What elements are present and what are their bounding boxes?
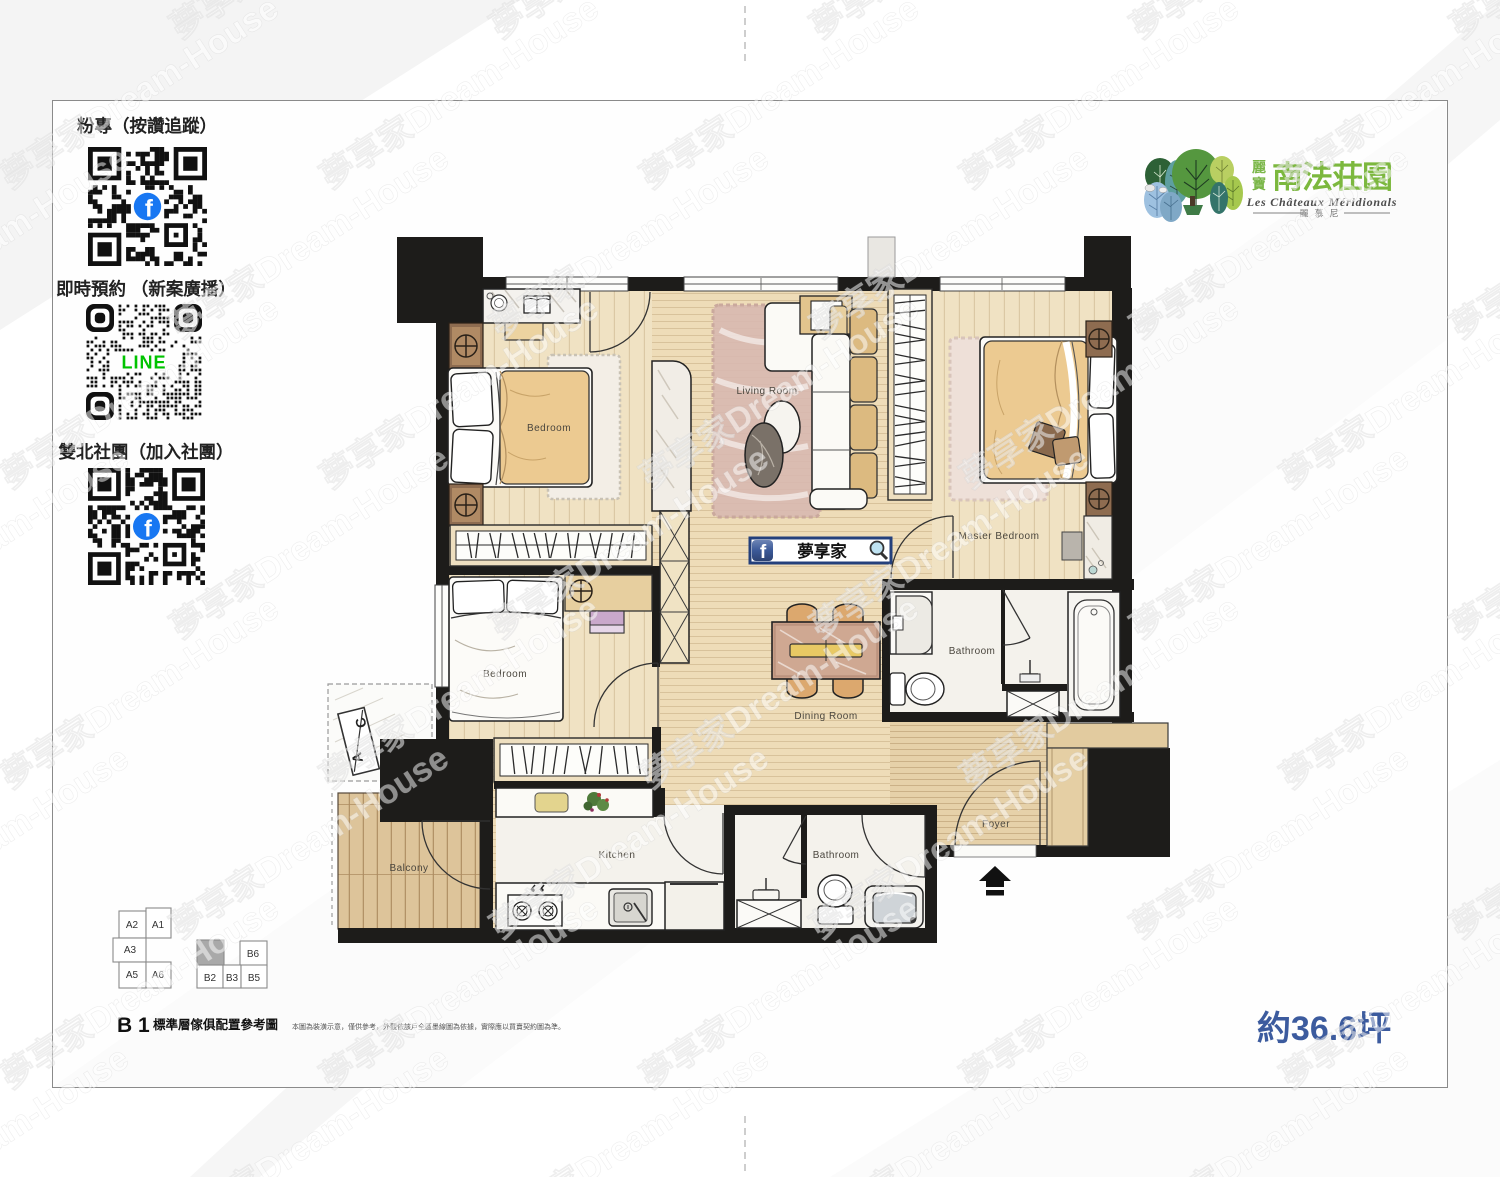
svg-text:f: f (144, 515, 152, 541)
svg-text:麗: 麗 (1252, 159, 1266, 175)
svg-text:Balcony: Balcony (389, 863, 428, 874)
svg-text:寶: 寶 (1252, 176, 1266, 192)
svg-text:B3: B3 (226, 973, 239, 984)
svg-text:A1: A1 (152, 920, 165, 931)
svg-text:B5: B5 (248, 973, 261, 984)
svg-text:標準層傢俱配置參考圖: 標準層傢俱配置參考圖 (153, 1017, 278, 1032)
svg-text:B2: B2 (204, 973, 217, 984)
svg-text:Dining Room: Dining Room (794, 711, 857, 722)
svg-text:f: f (145, 196, 154, 223)
svg-text:Bedroom: Bedroom (527, 423, 571, 434)
svg-text:Bathroom: Bathroom (949, 646, 996, 657)
svg-text:夢享家: 夢享家 (797, 541, 847, 561)
svg-text:A2: A2 (126, 920, 139, 931)
svg-text:B6: B6 (247, 949, 260, 960)
svg-text:f: f (760, 542, 767, 563)
svg-text:Bathroom: Bathroom (813, 850, 860, 861)
svg-text:A3: A3 (124, 945, 137, 956)
